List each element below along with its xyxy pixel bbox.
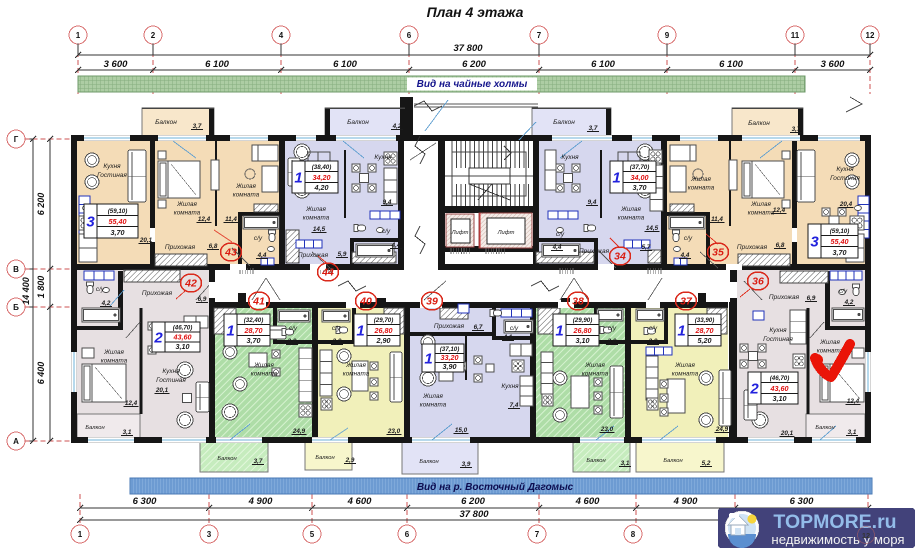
svg-text:3 600: 3 600 [821, 59, 845, 70]
svg-text:Балкон: Балкон [419, 459, 439, 465]
svg-text:(32,40): (32,40) [244, 317, 264, 324]
svg-text:3,9: 3,9 [462, 461, 471, 468]
svg-text:5,7: 5,7 [642, 244, 651, 251]
svg-text:6,8: 6,8 [776, 242, 785, 249]
svg-text:Жилая: Жилая [584, 362, 605, 369]
svg-text:Балкон: Балкон [815, 425, 835, 431]
svg-text:44: 44 [321, 267, 334, 279]
svg-text:Балкон: Балкон [748, 120, 770, 127]
svg-text:20,1: 20,1 [155, 387, 169, 394]
svg-text:Балкон: Балкон [586, 458, 606, 464]
svg-text:3,10: 3,10 [576, 336, 590, 345]
svg-text:1: 1 [294, 170, 302, 187]
svg-text:комната: комната [101, 358, 128, 365]
svg-text:Прихожая: Прихожая [298, 252, 329, 259]
svg-text:24,9: 24,9 [715, 426, 729, 433]
svg-text:35: 35 [712, 247, 724, 259]
svg-text:Жилая: Жилая [422, 393, 443, 400]
svg-text:43,60: 43,60 [173, 333, 192, 342]
svg-text:Жилая: Жилая [103, 349, 124, 356]
svg-text:Жилая: Жилая [674, 362, 695, 369]
svg-text:14,5: 14,5 [646, 225, 659, 232]
svg-text:12,4: 12,4 [125, 400, 138, 407]
svg-text:38: 38 [572, 296, 584, 308]
svg-text:8: 8 [631, 530, 636, 539]
svg-text:Прихожая: Прихожая [434, 323, 465, 330]
svg-text:7: 7 [537, 31, 542, 40]
svg-text:4,4: 4,4 [680, 252, 690, 259]
svg-text:3,8: 3,8 [333, 338, 342, 345]
svg-text:5,2: 5,2 [702, 460, 711, 467]
svg-text:34,20: 34,20 [313, 173, 331, 182]
svg-text:39: 39 [426, 296, 438, 308]
svg-text:(59,10): (59,10) [830, 228, 850, 235]
svg-text:20,1: 20,1 [139, 237, 153, 244]
svg-text:с/у: с/у [510, 325, 519, 332]
svg-text:6 300: 6 300 [790, 496, 814, 507]
svg-text:6: 6 [405, 530, 410, 539]
svg-text:(33,90): (33,90) [695, 317, 715, 324]
svg-text:Кухня: Кухня [501, 383, 519, 390]
svg-text:43,60: 43,60 [770, 384, 789, 393]
svg-text:6 200: 6 200 [36, 193, 46, 216]
svg-text:3: 3 [810, 234, 819, 251]
svg-text:6,7: 6,7 [474, 324, 483, 331]
svg-text:11: 11 [791, 31, 800, 40]
svg-text:3,8: 3,8 [608, 338, 617, 345]
svg-text:1: 1 [356, 323, 364, 340]
svg-text:3,1: 3,1 [621, 460, 630, 467]
svg-text:Балкон: Балкон [315, 455, 335, 461]
svg-text:комната: комната [174, 210, 201, 217]
svg-text:3 600: 3 600 [104, 59, 128, 70]
svg-text:(38,40): (38,40) [312, 164, 332, 171]
svg-text:1: 1 [424, 351, 432, 368]
svg-text:6,9: 6,9 [807, 295, 816, 302]
svg-text:6,9: 6,9 [198, 296, 207, 303]
svg-text:Прихожая: Прихожая [142, 290, 173, 297]
svg-text:5,9: 5,9 [338, 251, 347, 258]
svg-text:11,4: 11,4 [225, 216, 237, 223]
svg-text:4,2: 4,2 [844, 299, 854, 306]
svg-text:Балкон: Балкон [553, 119, 575, 126]
svg-text:4: 4 [279, 31, 284, 40]
svg-text:Жилая: Жилая [819, 339, 840, 346]
svg-text:(37,70): (37,70) [630, 164, 650, 171]
svg-text:7,4: 7,4 [510, 402, 519, 409]
svg-text:20,1: 20,1 [780, 430, 794, 437]
svg-text:34: 34 [614, 251, 626, 263]
svg-text:комната: комната [251, 371, 278, 378]
svg-text:с/у: с/у [289, 325, 298, 332]
svg-text:6 100: 6 100 [205, 59, 229, 70]
svg-text:4,20: 4,20 [314, 183, 329, 192]
svg-text:Лифт: Лифт [497, 230, 515, 236]
svg-text:6 300: 6 300 [133, 496, 157, 507]
svg-text:42: 42 [184, 278, 197, 290]
svg-text:Кухня: Кухня [374, 154, 392, 161]
svg-text:1: 1 [612, 170, 620, 187]
svg-text:(46,70): (46,70) [173, 325, 193, 332]
svg-text:с/у: с/у [649, 325, 658, 332]
svg-text:(29,70): (29,70) [374, 317, 394, 324]
svg-text:(29,90): (29,90) [573, 317, 593, 324]
svg-text:4,4: 4,4 [391, 242, 401, 249]
svg-text:3,90: 3,90 [443, 362, 457, 371]
svg-text:3,70: 3,70 [833, 248, 847, 257]
svg-text:3,70: 3,70 [111, 228, 125, 237]
svg-text:(59,10): (59,10) [108, 208, 128, 215]
svg-text:Б: Б [13, 303, 19, 312]
svg-text:комната: комната [343, 371, 370, 378]
svg-text:с/у: с/у [96, 286, 105, 293]
svg-text:Жилая: Жилая [620, 206, 641, 213]
svg-text:3,1: 3,1 [123, 429, 132, 436]
svg-text:6,8: 6,8 [209, 243, 218, 250]
svg-text:4 900: 4 900 [248, 496, 273, 507]
svg-text:26,80: 26,80 [374, 326, 393, 335]
svg-text:недвижимость у моря: недвижимость у моря [771, 532, 904, 547]
svg-text:20,4: 20,4 [839, 201, 853, 208]
svg-text:9,4: 9,4 [588, 199, 597, 206]
svg-text:14 400: 14 400 [21, 277, 31, 305]
svg-text:23,0: 23,0 [387, 428, 401, 435]
svg-text:41: 41 [252, 296, 265, 308]
svg-text:36: 36 [752, 276, 764, 288]
svg-text:15,0: 15,0 [455, 427, 468, 434]
svg-text:Прихожая: Прихожая [165, 244, 196, 251]
svg-text:4,4: 4,4 [552, 244, 562, 251]
svg-text:6: 6 [407, 31, 412, 40]
svg-text:26,80: 26,80 [573, 326, 592, 335]
svg-text:1 800: 1 800 [36, 276, 46, 299]
svg-text:Гостиная: Гостиная [763, 336, 793, 343]
svg-text:с/у: с/у [382, 228, 391, 235]
svg-text:Жилая: Жилая [253, 362, 274, 369]
svg-text:5: 5 [310, 530, 315, 539]
svg-text:1: 1 [226, 323, 234, 340]
svg-text:3,70: 3,70 [633, 183, 647, 192]
svg-text:Кухня: Кухня [103, 163, 121, 170]
svg-text:2,90: 2,90 [376, 336, 391, 345]
svg-text:(46,70): (46,70) [770, 375, 790, 382]
svg-text:Балкон: Балкон [85, 425, 105, 431]
svg-text:В: В [13, 265, 19, 274]
svg-text:55,40: 55,40 [109, 217, 127, 226]
svg-text:с/у: с/у [556, 231, 565, 238]
svg-text:6 100: 6 100 [333, 59, 357, 70]
svg-text:с/у: с/у [332, 325, 341, 332]
svg-text:6 100: 6 100 [719, 59, 743, 70]
svg-text:12: 12 [866, 31, 875, 40]
svg-text:Прихожая: Прихожая [579, 248, 610, 255]
svg-text:3,70: 3,70 [247, 336, 261, 345]
svg-text:4,2: 4,2 [392, 123, 402, 130]
svg-text:Кухня: Кухня [162, 368, 180, 375]
svg-text:23,0: 23,0 [600, 426, 614, 433]
svg-text:55,40: 55,40 [831, 237, 849, 246]
svg-text:Гостиная: Гостиная [97, 172, 127, 179]
svg-text:Прихожая: Прихожая [737, 244, 768, 251]
svg-text:14,5: 14,5 [313, 226, 326, 233]
svg-text:34,00: 34,00 [631, 173, 649, 182]
svg-text:с/у: с/у [608, 325, 617, 332]
svg-text:TOPMORE.ru: TOPMORE.ru [773, 511, 896, 533]
svg-text:2: 2 [749, 381, 759, 398]
svg-text:(37,10): (37,10) [440, 346, 460, 353]
svg-text:А: А [13, 437, 19, 446]
svg-text:12,4: 12,4 [198, 216, 211, 223]
svg-text:Кухня: Кухня [836, 166, 854, 173]
svg-text:33,20: 33,20 [441, 353, 459, 362]
svg-text:комната: комната [688, 185, 715, 192]
svg-text:3,10: 3,10 [773, 394, 787, 403]
svg-text:3,1: 3,1 [848, 429, 857, 436]
svg-text:28,70: 28,70 [244, 326, 263, 335]
svg-text:6 400: 6 400 [36, 362, 46, 385]
svg-text:4 900: 4 900 [673, 496, 698, 507]
svg-text:5,20: 5,20 [698, 336, 712, 345]
svg-text:Г: Г [14, 135, 19, 144]
svg-text:12,4: 12,4 [847, 398, 860, 405]
svg-text:4,4: 4,4 [257, 252, 267, 259]
svg-text:Жилая: Жилая [235, 183, 256, 190]
svg-text:37: 37 [680, 296, 693, 308]
svg-text:24,9: 24,9 [292, 428, 306, 435]
svg-text:4 600: 4 600 [575, 496, 600, 507]
svg-text:комната: комната [420, 402, 447, 409]
svg-text:комната: комната [233, 192, 260, 199]
svg-text:12: 12 [862, 531, 870, 540]
svg-text:4 600: 4 600 [347, 496, 372, 507]
svg-text:37 800: 37 800 [453, 43, 483, 54]
svg-text:1: 1 [555, 323, 563, 340]
svg-text:Кухня: Кухня [769, 327, 787, 334]
svg-text:3,8: 3,8 [649, 338, 658, 345]
svg-text:Вид на чайные холмы: Вид на чайные холмы [417, 79, 528, 90]
svg-text:План 4 этажа: План 4 этажа [427, 4, 524, 20]
svg-text:1: 1 [677, 323, 685, 340]
svg-text:6 200: 6 200 [461, 496, 485, 507]
svg-text:с/у: с/у [839, 288, 848, 295]
svg-text:2: 2 [153, 330, 163, 347]
svg-text:11,4: 11,4 [711, 216, 723, 223]
svg-text:с/у: с/у [684, 235, 693, 242]
svg-text:3: 3 [86, 214, 95, 231]
svg-text:6 100: 6 100 [591, 59, 615, 70]
svg-text:28,70: 28,70 [695, 326, 714, 335]
svg-text:Жилая: Жилая [345, 362, 366, 369]
svg-text:2,9: 2,9 [345, 457, 355, 464]
svg-text:3,8: 3,8 [288, 338, 297, 345]
svg-text:2: 2 [151, 31, 156, 40]
svg-text:37 800: 37 800 [459, 509, 489, 520]
svg-text:3,7: 3,7 [589, 125, 598, 132]
svg-text:Гостиная: Гостиная [830, 175, 860, 182]
svg-text:4,2: 4,2 [101, 300, 111, 307]
svg-text:9: 9 [665, 31, 670, 40]
svg-text:Вид на р. Восточный Дагомыс: Вид на р. Восточный Дагомыс [417, 482, 574, 493]
svg-text:4,1: 4,1 [503, 334, 513, 341]
svg-text:Жилая: Жилая [690, 176, 711, 183]
svg-text:Кухня: Кухня [561, 154, 579, 161]
svg-text:9,4: 9,4 [383, 199, 392, 206]
svg-text:7: 7 [535, 530, 540, 539]
svg-text:Балкон: Балкон [347, 119, 369, 126]
svg-text:3,7: 3,7 [254, 458, 263, 465]
svg-text:Прихожая: Прихожая [769, 294, 800, 301]
svg-text:43: 43 [224, 247, 237, 259]
svg-text:6 200: 6 200 [462, 59, 486, 70]
svg-text:Жилая: Жилая [750, 201, 771, 208]
svg-text:Лифт: Лифт [451, 230, 469, 236]
svg-text:12,4: 12,4 [773, 207, 786, 214]
svg-text:комната: комната [672, 371, 699, 378]
svg-text:Гостиная: Гостиная [156, 377, 186, 384]
svg-text:Балкон: Балкон [663, 458, 683, 464]
svg-text:3: 3 [207, 530, 212, 539]
svg-text:комната: комната [582, 371, 609, 378]
svg-text:комната: комната [748, 210, 775, 217]
svg-text:3,10: 3,10 [176, 342, 190, 351]
svg-text:3,7: 3,7 [792, 126, 801, 133]
svg-text:3,7: 3,7 [193, 123, 202, 130]
svg-text:1: 1 [76, 31, 81, 40]
svg-text:Жилая: Жилая [305, 206, 326, 213]
svg-text:комната: комната [303, 215, 330, 222]
svg-text:1: 1 [78, 530, 83, 539]
svg-text:Жилая: Жилая [176, 201, 197, 208]
svg-text:Балкон: Балкон [217, 456, 237, 462]
svg-text:комната: комната [618, 215, 645, 222]
svg-text:Балкон: Балкон [155, 119, 177, 126]
svg-text:с/у: с/у [254, 235, 263, 242]
svg-text:40: 40 [359, 296, 372, 308]
